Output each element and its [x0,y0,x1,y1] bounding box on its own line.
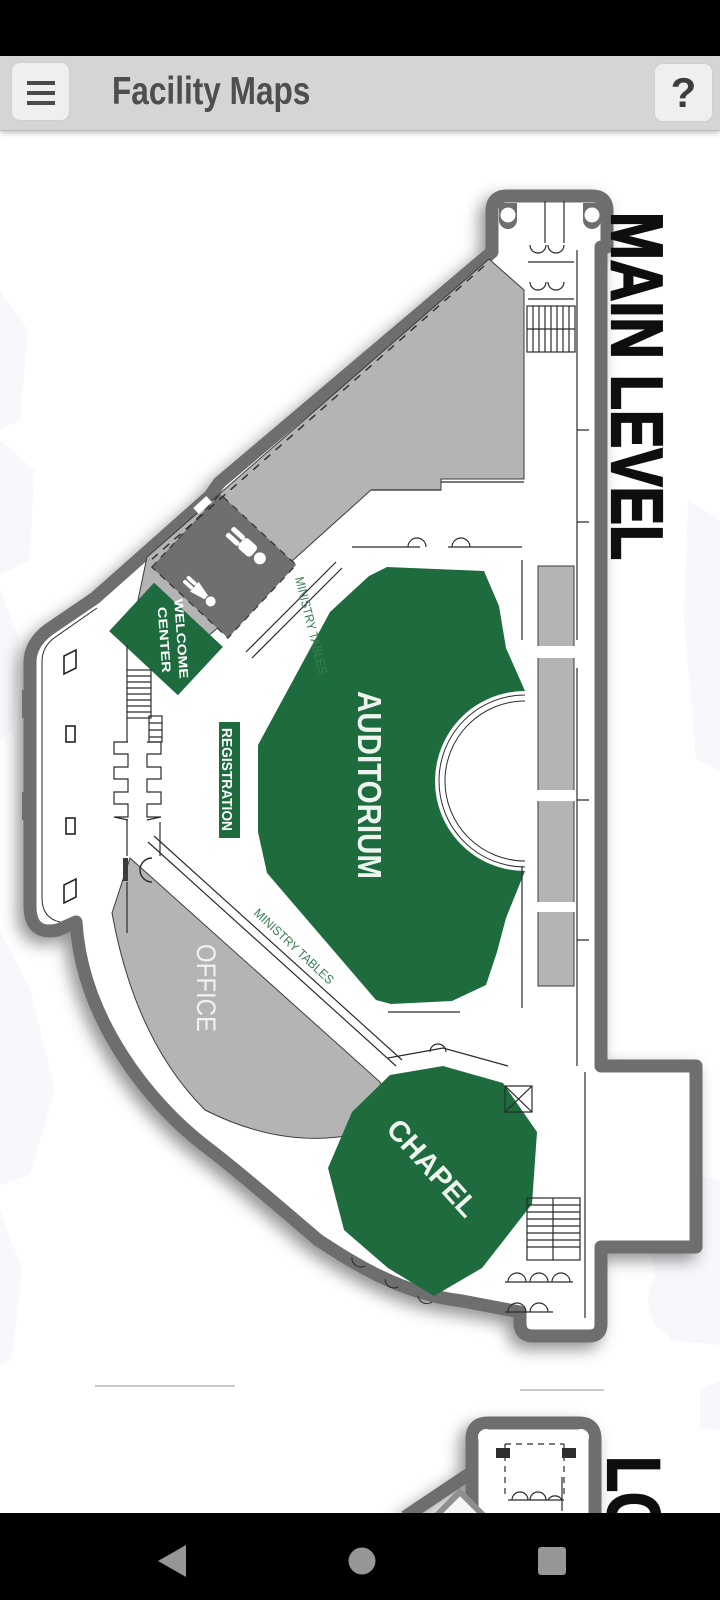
svg-text:REGISTRATION: REGISTRATION [218,728,234,831]
svg-text:MAIN LEVEL: MAIN LEVEL [596,212,676,560]
svg-text:AUDITORIUM: AUDITORIUM [351,691,388,879]
svg-text:OFFICE: OFFICE [191,944,221,1032]
